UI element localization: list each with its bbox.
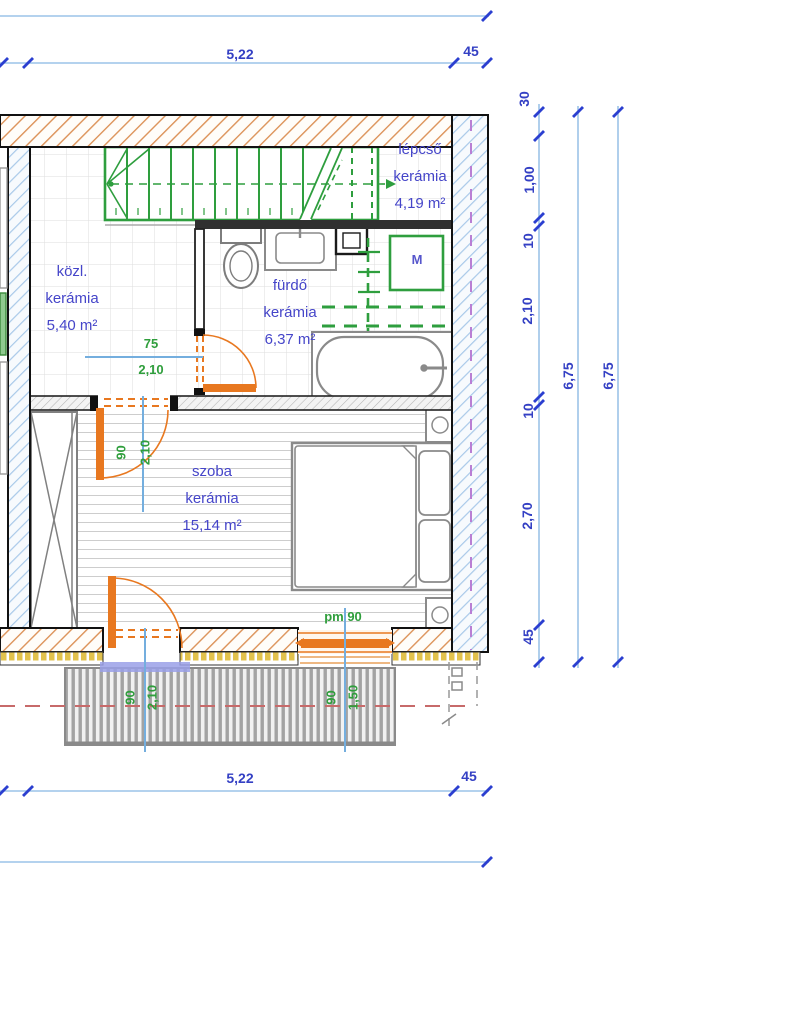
room-area: 15,14 m²	[168, 512, 256, 539]
insulation-strips	[0, 652, 480, 665]
dim-right-10b: 10	[520, 389, 536, 433]
balcony-door-width-label: 90	[123, 680, 138, 716]
bath-door-width-label: 75	[136, 336, 166, 351]
dim-top-width: 5,22	[212, 46, 268, 62]
bottom-wall	[0, 628, 103, 652]
floorplan-page: 5,22 45 5,22 45 30 1,00 10 2,10 10 2,70 …	[0, 0, 791, 1024]
dim-right-210: 2,10	[519, 289, 535, 333]
bathtub-icon	[312, 332, 452, 404]
dim-right-total-inner: 6,75	[560, 354, 576, 398]
room-label-kozl: közl. kerámia 5,40 m²	[32, 258, 112, 339]
dim-right-10a: 10	[520, 219, 536, 263]
room-label-lepcso: lépcső kerámia 4,19 m²	[382, 136, 458, 217]
room-area: 4,19 m²	[382, 190, 458, 217]
room-area: 5,40 m²	[32, 312, 112, 339]
dim-right-30: 30	[516, 77, 532, 121]
room-name: közl.	[32, 258, 112, 285]
stairs	[105, 147, 396, 220]
window-sill-label: pm 90	[316, 609, 370, 624]
room-door-height-label: 2,10	[138, 435, 153, 471]
dim-top-offset: 45	[456, 43, 486, 59]
wardrobe-icon	[31, 412, 77, 628]
room-name: szoba	[168, 458, 256, 485]
bath-door-height-label: 2,10	[131, 362, 171, 377]
dim-bottom-offset: 45	[454, 768, 484, 784]
room-door-width-label: 90	[114, 435, 129, 471]
balcony-door-height-label: 2,10	[145, 680, 160, 716]
room-name: fürdő	[248, 272, 332, 299]
room-material: kerámia	[248, 299, 332, 326]
room-material: kerámia	[382, 163, 458, 190]
room-material: kerámia	[32, 285, 112, 312]
washing-machine-label: M	[404, 252, 430, 267]
dim-bottom-width: 5,22	[212, 770, 268, 786]
cabinet-icon	[336, 227, 367, 254]
room-label-szoba: szoba kerámia 15,14 m²	[168, 458, 256, 539]
dim-right-45: 45	[520, 615, 536, 659]
bottom-wall	[180, 628, 298, 652]
dim-right-total-outer: 6,75	[600, 354, 616, 398]
room-area: 6,37 m²	[248, 326, 332, 353]
room-name: lépcső	[382, 136, 458, 163]
bottom-wall	[392, 628, 452, 652]
washbasin-icon	[265, 226, 336, 270]
pillow-icon	[419, 520, 450, 582]
dim-right-100: 1,00	[521, 158, 537, 202]
pillow-icon	[419, 451, 450, 515]
room-material: kerámia	[168, 485, 256, 512]
window-height-label: 1,50	[346, 680, 361, 716]
dim-right-270: 2,70	[519, 494, 535, 538]
window-width-label: 90	[324, 680, 339, 716]
room-label-furdo: fürdő kerámia 6,37 m²	[248, 272, 332, 353]
left-wall	[8, 147, 30, 630]
